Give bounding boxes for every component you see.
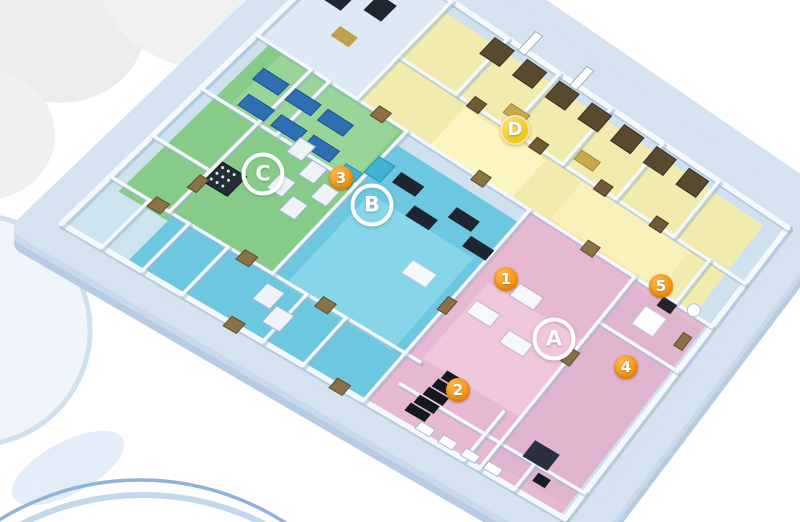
marker-2: 2	[446, 378, 470, 402]
marker-3: 3	[329, 166, 353, 190]
marker-c: C	[242, 153, 285, 196]
marker-b: B	[351, 184, 394, 227]
marker-d: D	[500, 115, 530, 145]
floor-plan-illustration: A B C D 1 2 3 4 5	[0, 0, 800, 522]
marker-1: 1	[494, 267, 518, 291]
marker-4: 4	[614, 355, 638, 379]
marker-a: A	[533, 318, 576, 361]
markers-overlay: A B C D 1 2 3 4 5	[0, 0, 800, 522]
marker-5: 5	[649, 274, 673, 298]
